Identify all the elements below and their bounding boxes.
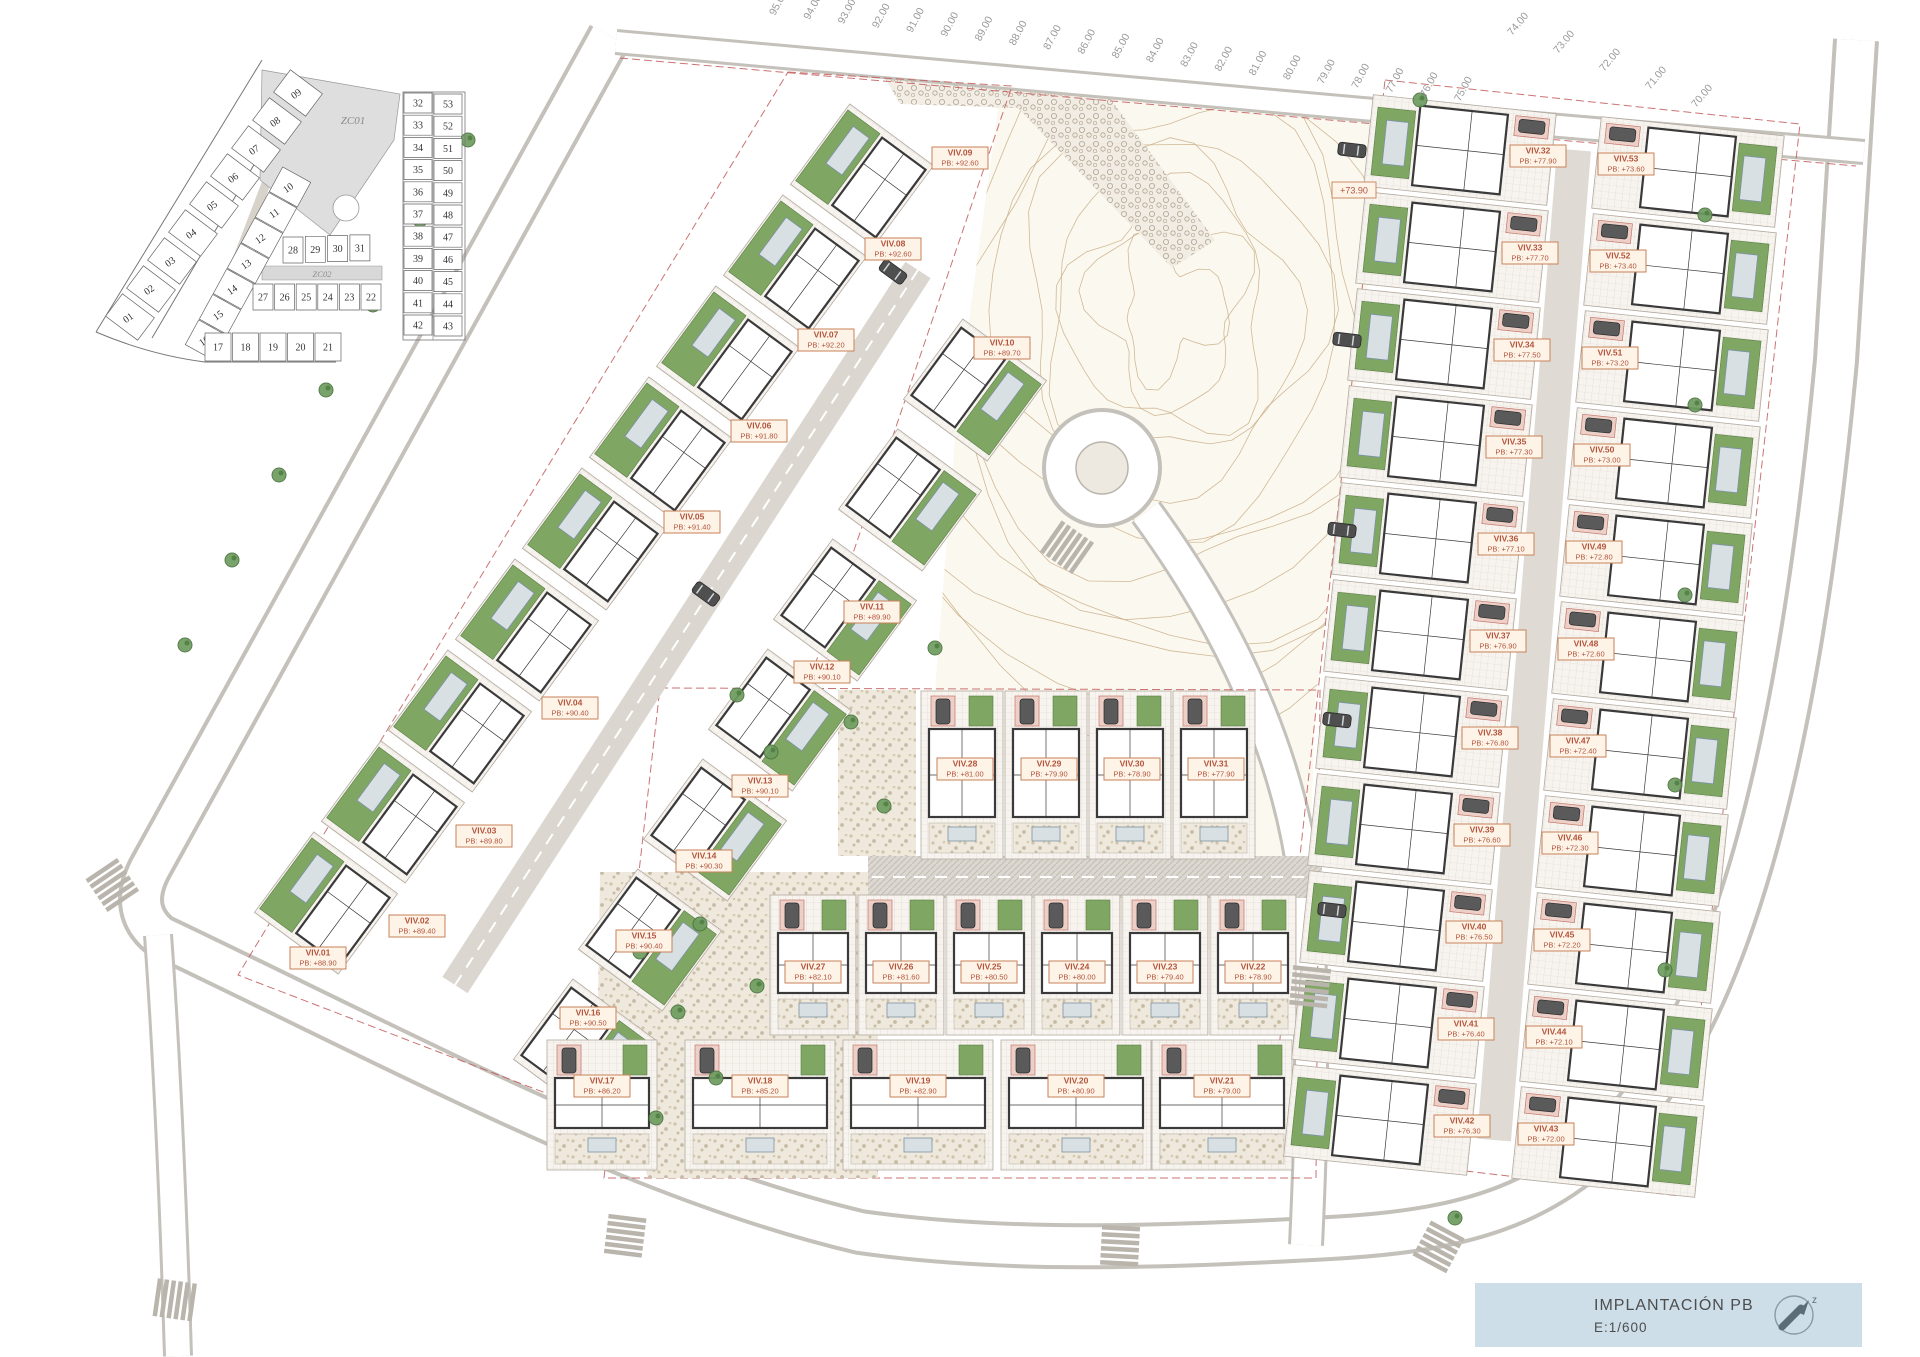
villa-pb-elevation: PB: +90.30 (685, 862, 722, 871)
villa-label: VIV.45PB: +72.20 (1534, 929, 1590, 951)
street-grade-label: 91.00 (904, 6, 927, 35)
villa-label: VIV.36PB: +77.10 (1478, 533, 1534, 555)
villa-id: VIV.01 (306, 948, 331, 958)
villa-pb-elevation: PB: +92.20 (807, 341, 844, 350)
keyplan-plot-number: 46 (443, 255, 453, 266)
keyplan-plot-number: 27 (258, 293, 268, 304)
svg-text:z: z (1812, 1295, 1817, 1306)
villa-pb-elevation: PB: +82.10 (794, 973, 831, 982)
villa-id: VIV.44 (1542, 1027, 1567, 1037)
tree-icon (750, 979, 764, 993)
villa-id: VIV.49 (1582, 542, 1607, 552)
villa-pb-elevation: PB: +78.90 (1113, 770, 1150, 779)
keyplan-plot-number: 48 (443, 211, 453, 222)
keyplan-plot-number: 53 (443, 100, 453, 111)
villa-label: VIV.14PB: +90.30 (676, 850, 732, 872)
keyplan-plot-number: 22 (366, 293, 376, 304)
villa-id: VIV.18 (748, 1076, 773, 1086)
spot-elevation: +73.90 (1332, 182, 1376, 198)
keyplan-plot-number: 21 (323, 343, 333, 354)
villa-pb-elevation: PB: +90.50 (569, 1019, 606, 1028)
villa-id: VIV.17 (590, 1076, 615, 1086)
street-grade-label: 73.00 (1551, 28, 1577, 56)
villa-label: VIV.31PB: +77.90 (1188, 758, 1244, 780)
villa-label: VIV.38PB: +76.80 (1462, 727, 1518, 749)
keyplan-plot-number: 38 (413, 232, 423, 243)
street-grade-label: 81.00 (1247, 49, 1270, 78)
villa-id: VIV.39 (1470, 825, 1495, 835)
villa-label: VIV.06PB: +91.80 (731, 420, 787, 442)
villa-pb-elevation: PB: +76.60 (1463, 836, 1500, 845)
keyplan-plot-number: 36 (413, 187, 423, 198)
villa-id: VIV.32 (1526, 146, 1551, 156)
villa-id: VIV.15 (632, 931, 657, 941)
villa-label: VIV.05PB: +91.40 (664, 511, 720, 533)
villa-label: VIV.53PB: +73.60 (1598, 153, 1654, 175)
villa-label: VIV.33PB: +77.70 (1502, 242, 1558, 264)
tree-icon (1658, 963, 1672, 977)
villa-label: VIV.48PB: +72.60 (1558, 638, 1614, 660)
villa-id: VIV.07 (814, 330, 839, 340)
villa-id: VIV.06 (747, 421, 772, 431)
villa-VIV.21 (1152, 1040, 1292, 1170)
keyplan-plot-number: 49 (443, 188, 453, 199)
tree-icon (1448, 1211, 1462, 1225)
villa-label: VIV.26PB: +81.60 (873, 961, 929, 983)
villa-id: VIV.23 (1153, 962, 1178, 972)
villa-pb-elevation: PB: +82.90 (899, 1087, 936, 1096)
villa-id: VIV.38 (1478, 728, 1503, 738)
villa-pb-elevation: PB: +90.10 (803, 673, 840, 682)
villa-label: VIV.21PB: +79.00 (1194, 1075, 1250, 1097)
street-grade-label: 83.00 (1178, 40, 1201, 69)
keyplan-plot-number: 43 (443, 322, 453, 333)
villa-id: VIV.20 (1064, 1076, 1089, 1086)
street-grade-label: 92.00 (870, 1, 893, 30)
villa-id: VIV.41 (1454, 1019, 1479, 1029)
crosswalk (604, 1214, 647, 1258)
villa-pb-elevation: PB: +91.40 (673, 523, 710, 532)
villa-pb-elevation: PB: +78.90 (1234, 973, 1271, 982)
keyplan-plot-number: 29 (310, 245, 320, 256)
villa-pb-elevation: PB: +73.20 (1591, 359, 1628, 368)
villa-id: VIV.09 (948, 148, 973, 158)
villa-pb-elevation: PB: +72.60 (1567, 650, 1604, 659)
villa-id: VIV.36 (1494, 534, 1519, 544)
villa-id: VIV.04 (558, 698, 583, 708)
tree-icon (877, 799, 891, 813)
villa-label: VIV.15PB: +90.40 (616, 930, 672, 952)
villa-pb-elevation: PB: +72.30 (1551, 844, 1588, 853)
tree-icon (225, 553, 239, 567)
villa-label: VIV.11PB: +89.90 (844, 601, 900, 623)
villa-id: VIV.28 (953, 759, 978, 769)
villa-label: VIV.17PB: +86.20 (574, 1075, 630, 1097)
tree-icon (1688, 398, 1702, 412)
villa-label: VIV.32PB: +77.90 (1510, 145, 1566, 167)
villa-id: VIV.14 (692, 851, 717, 861)
villa-id: VIV.25 (977, 962, 1002, 972)
spot-elevation-value: +73.90 (1340, 186, 1368, 196)
villa-label: VIV.10PB: +89.70 (974, 337, 1030, 359)
villa-pb-elevation: PB: +79.00 (1203, 1087, 1240, 1096)
villa-pb-elevation: PB: +85.20 (741, 1087, 778, 1096)
villa-pb-elevation: PB: +73.00 (1583, 456, 1620, 465)
villa-pb-elevation: PB: +90.10 (741, 787, 778, 796)
villa-label: VIV.52PB: +73.40 (1590, 250, 1646, 272)
villa-label: VIV.13PB: +90.10 (732, 775, 788, 797)
street-grade-label: 70.00 (1689, 82, 1715, 110)
street-grade-label: 72.00 (1597, 46, 1623, 74)
tree-icon (461, 133, 475, 147)
villa-id: VIV.30 (1120, 759, 1145, 769)
villa-pb-elevation: PB: +72.40 (1559, 747, 1596, 756)
street-grade-label: 87.00 (1041, 23, 1064, 52)
villa-id: VIV.08 (881, 239, 906, 249)
villa-label: VIV.25PB: +80.50 (961, 961, 1017, 983)
villa-label: VIV.03PB: +89.80 (456, 825, 512, 847)
villa-pb-elevation: PB: +72.10 (1535, 1038, 1572, 1047)
villa-pb-elevation: PB: +77.10 (1487, 545, 1524, 554)
villa-id: VIV.19 (906, 1076, 931, 1086)
villa-pb-elevation: PB: +81.60 (882, 973, 919, 982)
villa-pb-elevation: PB: +81.00 (946, 770, 983, 779)
villa-label: VIV.39PB: +76.60 (1454, 824, 1510, 846)
keyplan-plot-number: 24 (323, 293, 333, 304)
villa-pb-elevation: PB: +79.90 (1030, 770, 1067, 779)
villa-id: VIV.34 (1510, 340, 1535, 350)
villa-id: VIV.22 (1241, 962, 1266, 972)
street-grade-label: 71.00 (1643, 64, 1669, 92)
keyplan-plot-number: 23 (344, 293, 354, 304)
villa-pb-elevation: PB: +80.90 (1057, 1087, 1094, 1096)
villa-pb-elevation: PB: +89.80 (465, 837, 502, 846)
villa-label: VIV.29PB: +79.90 (1021, 758, 1077, 780)
villa-pb-elevation: PB: +76.90 (1479, 642, 1516, 651)
street-grade-label: 79.00 (1315, 57, 1338, 86)
keyplan-plot-number: 33 (413, 121, 423, 132)
title-block: IMPLANTACIÓN PB E:1/600 z (1475, 1283, 1862, 1347)
street-grade-label: 93.00 (836, 0, 859, 26)
drawing-title: IMPLANTACIÓN PB (1594, 1295, 1754, 1314)
villa-id: VIV.26 (889, 962, 914, 972)
villa-pb-elevation: PB: +89.40 (398, 927, 435, 936)
villa-label: VIV.19PB: +82.90 (890, 1075, 946, 1097)
villa-label: VIV.28PB: +81.00 (937, 758, 993, 780)
architectural-site-plan: VIV.01PB: +88.90VIV.02PB: +89.40VIV.03PB… (0, 0, 1920, 1357)
villa-id: VIV.02 (405, 916, 430, 926)
street-grade-label: 89.00 (973, 14, 996, 43)
villa-id: VIV.27 (801, 962, 826, 972)
villa-label: VIV.27PB: +82.10 (785, 961, 841, 983)
keyplan-plot-number: 19 (268, 343, 278, 354)
villa-VIV.17 (547, 1040, 657, 1170)
keyplan-plot-number: 44 (443, 299, 453, 310)
keyplan-plot-number: 39 (413, 254, 423, 265)
villa-id: VIV.52 (1606, 251, 1631, 261)
villa-id: VIV.50 (1590, 445, 1615, 455)
keyplan-plot-number: 47 (443, 233, 453, 244)
street-grade-label: 84.00 (1144, 36, 1167, 65)
villa-VIV.18 (685, 1040, 835, 1170)
villa-id: VIV.46 (1558, 833, 1583, 843)
keyplan-plot-number: 30 (333, 244, 343, 255)
keyplan-plot-number: 20 (296, 343, 306, 354)
tree-icon (693, 917, 707, 931)
street-grade-label: 76.00 (1418, 70, 1441, 99)
villa-label: VIV.44PB: +72.10 (1526, 1026, 1582, 1048)
villa-id: VIV.21 (1210, 1076, 1235, 1086)
villa-label: VIV.23PB: +79.40 (1137, 961, 1193, 983)
keyplan-plot-number: 18 (241, 343, 251, 354)
villa-label: VIV.07PB: +92.20 (798, 329, 854, 351)
villa-id: VIV.35 (1502, 437, 1527, 447)
villa-label: VIV.42PB: +76.30 (1434, 1115, 1490, 1137)
street-grade-label: 95.00 (767, 0, 790, 17)
villa-label: VIV.35PB: +77.30 (1486, 436, 1542, 458)
villa-pb-elevation: PB: +92.60 (874, 250, 911, 259)
villa-id: VIV.37 (1486, 631, 1511, 641)
villa-label: VIV.46PB: +72.30 (1542, 832, 1598, 854)
villa-label: VIV.12PB: +90.10 (794, 661, 850, 683)
villa-pb-elevation: PB: +77.90 (1197, 770, 1234, 779)
villa-id: VIV.03 (472, 826, 497, 836)
villa-id: VIV.05 (680, 512, 705, 522)
villa-label: VIV.24PB: +80.00 (1049, 961, 1105, 983)
keyplan-plot-number: 37 (413, 210, 423, 221)
keyplan-plot-number: 25 (301, 293, 311, 304)
villa-pb-elevation: PB: +80.50 (970, 973, 1007, 982)
villa-id: VIV.10 (990, 338, 1015, 348)
villa-label: VIV.20PB: +80.90 (1048, 1075, 1104, 1097)
villa-label: VIV.34PB: +77.50 (1494, 339, 1550, 361)
villa-id: VIV.11 (860, 602, 885, 612)
keyplan-plot-number: 52 (443, 122, 453, 133)
keyplan-plot-number: 45 (443, 277, 453, 288)
tree-icon (709, 1071, 723, 1085)
villa-pb-elevation: PB: +92.60 (941, 159, 978, 168)
villa-pb-elevation: PB: +76.30 (1443, 1127, 1480, 1136)
villa-VIV.20 (1001, 1040, 1151, 1170)
tree-icon (928, 641, 942, 655)
villa-label: VIV.09PB: +92.60 (932, 147, 988, 169)
villa-label: VIV.01PB: +88.90 (290, 947, 346, 969)
villa-id: VIV.45 (1550, 930, 1575, 940)
villa-id: VIV.31 (1204, 759, 1229, 769)
villa-pb-elevation: PB: +86.20 (583, 1087, 620, 1096)
site-plan-drawing: VIV.01PB: +88.90VIV.02PB: +89.40VIV.03PB… (0, 0, 1920, 1357)
villa-label: VIV.02PB: +89.40 (389, 915, 445, 937)
key-plan-inset: ZC01ZC0201020304050607080910111213141516… (96, 60, 465, 362)
street-grade-label: 80.00 (1281, 53, 1304, 82)
villa-label: VIV.16PB: +90.50 (560, 1007, 616, 1029)
keyplan-plot-number: 34 (413, 143, 423, 154)
villa-pb-elevation: PB: +76.40 (1447, 1030, 1484, 1039)
street-grade-label: 88.00 (1007, 19, 1030, 48)
villa-label: VIV.37PB: +76.90 (1470, 630, 1526, 652)
keyplan-plot-number: 50 (443, 166, 453, 177)
villa-id: VIV.33 (1518, 243, 1543, 253)
villa-label: VIV.41PB: +76.40 (1438, 1018, 1494, 1040)
villa-VIV.19 (843, 1040, 993, 1170)
villa-pb-elevation: PB: +72.00 (1527, 1135, 1564, 1144)
street-grade-label: 86.00 (1075, 27, 1098, 56)
tree-icon (844, 715, 858, 729)
keyplan-plot-number: 17 (213, 343, 223, 354)
villa-pb-elevation: PB: +72.20 (1543, 941, 1580, 950)
street-grade-label: 85.00 (1110, 31, 1133, 60)
tree-icon (764, 745, 778, 759)
villa-pb-elevation: PB: +89.70 (983, 349, 1020, 358)
keyplan-plot-number: 28 (288, 246, 298, 257)
street-grade-label: 78.00 (1349, 62, 1372, 91)
villa-label: VIV.47PB: +72.40 (1550, 735, 1606, 757)
villa-pb-elevation: PB: +72.80 (1575, 553, 1612, 562)
villa-pb-elevation: PB: +80.00 (1058, 973, 1095, 982)
villa-pb-elevation: PB: +77.70 (1511, 254, 1548, 263)
villa-id: VIV.16 (576, 1008, 601, 1018)
street-grade-label: 74.00 (1505, 10, 1531, 38)
drawing-scale: E:1/600 (1594, 1320, 1648, 1335)
villa-pb-elevation: PB: +77.30 (1495, 448, 1532, 457)
villa-id: VIV.12 (810, 662, 835, 672)
villa-label: VIV.43PB: +72.00 (1518, 1123, 1574, 1145)
keyplan-plot-number: 31 (355, 243, 365, 254)
street-grade-label: 82.00 (1212, 44, 1235, 73)
tree-icon (730, 688, 744, 702)
keyplan-culdesac (333, 195, 359, 221)
villa-id: VIV.47 (1566, 736, 1591, 746)
villa-label: VIV.08PB: +92.60 (865, 238, 921, 260)
title-block-background (1475, 1283, 1862, 1347)
villa-pb-elevation: PB: +77.90 (1519, 157, 1556, 166)
tree-icon (319, 383, 333, 397)
keyplan-plot-number: 51 (443, 144, 453, 155)
villa-id: VIV.29 (1037, 759, 1062, 769)
tree-icon (1698, 208, 1712, 222)
villa-pb-elevation: PB: +77.50 (1503, 351, 1540, 360)
villa-id: VIV.42 (1450, 1116, 1475, 1126)
villa-id: VIV.43 (1534, 1124, 1559, 1134)
street-grade-label: 90.00 (938, 10, 961, 39)
villa-label: VIV.18PB: +85.20 (732, 1075, 788, 1097)
tree-icon (1678, 588, 1692, 602)
tree-icon (272, 468, 286, 482)
villa-pb-elevation: PB: +90.40 (551, 709, 588, 718)
street-grade-label: 94.00 (801, 0, 824, 22)
villa-id: VIV.48 (1574, 639, 1599, 649)
tree-icon (178, 638, 192, 652)
villa-label: VIV.49PB: +72.80 (1566, 541, 1622, 563)
villa-id: VIV.51 (1598, 348, 1623, 358)
villa-pb-elevation: PB: +91.80 (740, 432, 777, 441)
keyplan-plot-number: 41 (413, 298, 423, 309)
villa-label: VIV.04PB: +90.40 (542, 697, 598, 719)
villa-label: VIV.40PB: +76.50 (1446, 921, 1502, 943)
keyplan-plot-number: 40 (413, 276, 423, 287)
villa-pb-elevation: PB: +73.40 (1599, 262, 1636, 271)
keyplan-plot-number: 26 (280, 293, 290, 304)
villa-pb-elevation: PB: +90.40 (625, 942, 662, 951)
tree-icon (1668, 778, 1682, 792)
villa-pb-elevation: PB: +88.90 (299, 959, 336, 968)
villa-id: VIV.40 (1462, 922, 1487, 932)
keyplan-plot-number: 32 (413, 99, 423, 110)
villa-id: VIV.24 (1065, 962, 1090, 972)
villa-pb-elevation: PB: +79.40 (1146, 973, 1183, 982)
villa-id: VIV.13 (748, 776, 773, 786)
villa-pb-elevation: PB: +76.80 (1471, 739, 1508, 748)
keyplan-plot-number: 35 (413, 165, 423, 176)
villa-pb-elevation: PB: +73.60 (1607, 165, 1644, 174)
villa-label: VIV.30PB: +78.90 (1104, 758, 1160, 780)
keyplan-zc02-label: ZC02 (313, 269, 333, 279)
villa-id: VIV.53 (1614, 154, 1639, 164)
keyplan-plot-number: 42 (413, 321, 423, 332)
villa-label: VIV.51PB: +73.20 (1582, 347, 1638, 369)
villa-pb-elevation: PB: +76.50 (1455, 933, 1492, 942)
villa-pb-elevation: PB: +89.90 (853, 613, 890, 622)
villa-label: VIV.22PB: +78.90 (1225, 961, 1281, 983)
tree-icon (649, 1111, 663, 1125)
keyplan-zc01-label: ZC01 (341, 115, 365, 127)
villa-label: VIV.50PB: +73.00 (1574, 444, 1630, 466)
tree-icon (671, 1005, 685, 1019)
